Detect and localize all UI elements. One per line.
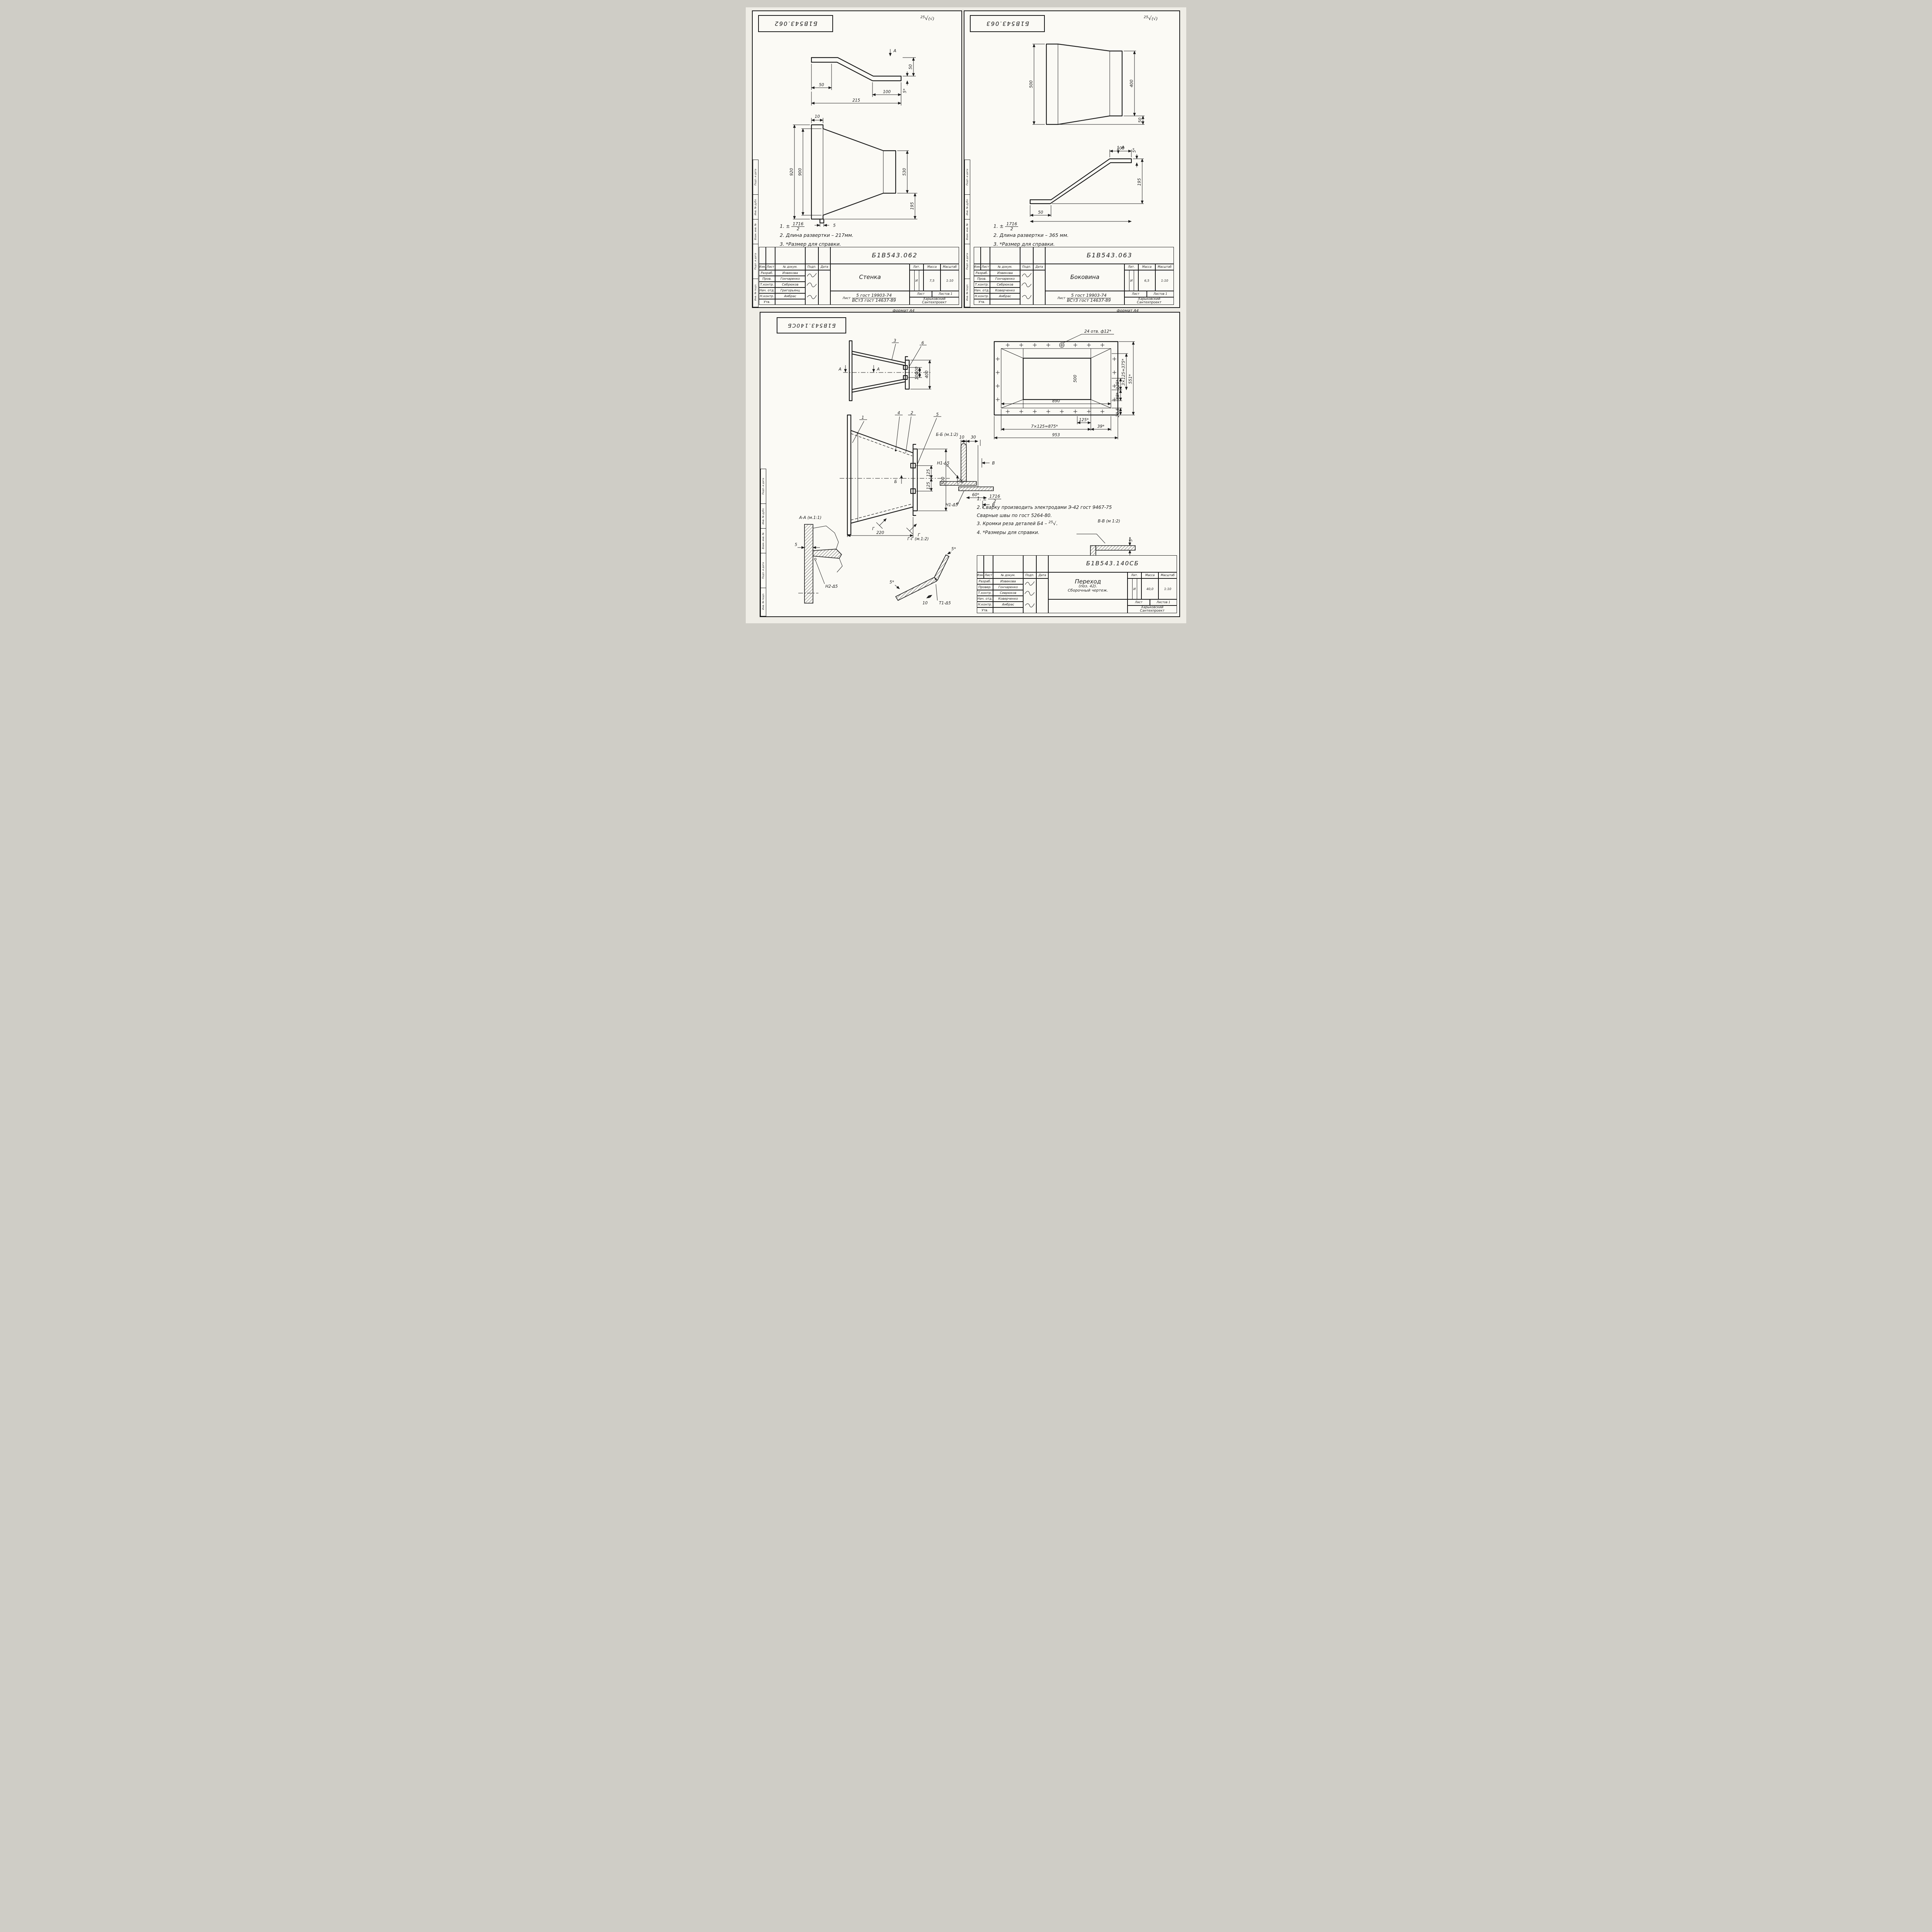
sheet-bokovina: Б1В543.063 25√(√) 500 400 50 bbox=[964, 10, 1180, 308]
organization: ХарьковскийСантехпроект bbox=[910, 297, 959, 305]
svg-text:125: 125 bbox=[926, 469, 931, 477]
svg-text:953: 953 bbox=[1052, 433, 1060, 437]
svg-text:50: 50 bbox=[819, 83, 824, 87]
svg-text:А: А bbox=[1121, 145, 1124, 150]
svg-text:5*: 5* bbox=[903, 88, 907, 93]
organization: ХарьковскийСантехпроект bbox=[1128, 605, 1177, 613]
frame-label-strip: Подп. и дата Инв. № дубл. Взам. инв. № П… bbox=[964, 160, 970, 307]
svg-text:5: 5 bbox=[936, 412, 939, 417]
svg-text:20,5: 20,5 bbox=[1116, 408, 1120, 417]
organization: ХарьковскийСантехпроект bbox=[1124, 297, 1174, 305]
svg-text:А: А bbox=[893, 49, 896, 53]
notes-block: 1. ±17162 2. Длина развертки – 217мм. 3.… bbox=[780, 222, 854, 248]
svg-text:6: 6 bbox=[922, 341, 924, 345]
ramp-profile-view-drawing: 50 100 195 5* А bbox=[1019, 135, 1150, 224]
svg-text:А: А bbox=[876, 367, 879, 372]
svg-text:125: 125 bbox=[926, 482, 931, 490]
frame-label-strip: Подп. и дата Инв. № дубл. Взам. инв. № П… bbox=[753, 160, 759, 307]
side-flat-view-drawing: 500 400 50 bbox=[1022, 32, 1146, 133]
svg-text:3×125=375*: 3×125=375* bbox=[1121, 359, 1126, 386]
sheet-stenka: Б1В543.062 25√(√) 50 100 215 50 bbox=[752, 10, 962, 308]
frame-label-strip: Подп. и дата Инв. № дубл. Взам. инв. № П… bbox=[760, 469, 766, 616]
dimensions: 50 100 195 5* А bbox=[1030, 145, 1144, 221]
svg-text:50: 50 bbox=[908, 64, 913, 70]
svg-text:50: 50 bbox=[1138, 117, 1143, 123]
svg-text:А: А bbox=[838, 367, 841, 372]
titleblock-doc-number: Б1В543.140СБ bbox=[1048, 555, 1177, 572]
notes-block: 1. ±17162 2. Сварку производить электрод… bbox=[977, 494, 1112, 537]
titleblock-doc-number: Б1В543.063 bbox=[1045, 247, 1174, 264]
svg-text:5*: 5* bbox=[1129, 537, 1133, 542]
svg-text:551*: 551* bbox=[1128, 374, 1133, 384]
svg-text:215: 215 bbox=[852, 98, 860, 103]
svg-text:Т1-Δ5: Т1-Δ5 bbox=[939, 601, 951, 605]
flange-plan-view-drawing: 24 отв. ф12* 890 500 125* 88* 3×125=375*… bbox=[986, 328, 1141, 444]
svg-text:500: 500 bbox=[1073, 375, 1078, 383]
part-name: Боковина bbox=[1045, 264, 1124, 291]
svg-text:900: 900 bbox=[798, 168, 803, 176]
annotations: 24 отв. ф12* 890 500 125* 88* 3×125=375*… bbox=[994, 329, 1135, 439]
listov-cell: Листов 1 bbox=[1147, 291, 1174, 297]
svg-text:100: 100 bbox=[883, 90, 891, 94]
note-1: 1. ±17162 bbox=[780, 222, 854, 231]
svg-text:Б: Б bbox=[894, 480, 897, 484]
svg-text:920: 920 bbox=[789, 168, 794, 176]
svg-text:400: 400 bbox=[925, 371, 929, 378]
svg-text:5*: 5* bbox=[889, 580, 894, 585]
doc-number-text: Б1В543.140СБ bbox=[787, 322, 836, 328]
note-4: 4. *Размеры для справки. bbox=[977, 529, 1112, 537]
svg-text:3: 3 bbox=[894, 338, 896, 343]
check-paren-icon: (√) bbox=[928, 16, 934, 21]
svg-text:Н1-Δ5: Н1-Δ5 bbox=[946, 503, 958, 507]
note-2: 2. Длина развертки – 365 мм. bbox=[993, 231, 1069, 240]
note-2: 2. Длина развертки – 217мм. bbox=[780, 231, 854, 240]
svg-text:10: 10 bbox=[959, 435, 964, 440]
svg-text:100: 100 bbox=[915, 372, 919, 380]
svg-text:39*: 39* bbox=[1097, 424, 1105, 429]
signature-scribbles bbox=[1020, 270, 1033, 305]
roughness-mark: 25√(√) bbox=[1144, 14, 1158, 22]
svg-text:24 отв. ф12*: 24 отв. ф12* bbox=[1084, 329, 1111, 334]
check-paren-icon: (√) bbox=[1151, 16, 1158, 21]
note-1: 1. ±17162 bbox=[993, 222, 1069, 231]
material-cell bbox=[1048, 599, 1128, 613]
svg-text:530: 530 bbox=[902, 168, 907, 176]
svg-text:10: 10 bbox=[922, 601, 928, 605]
doc-number-stamp: Б1В543.063 bbox=[970, 15, 1045, 32]
svg-text:5*: 5* bbox=[1132, 148, 1137, 153]
svg-text:2: 2 bbox=[911, 411, 913, 415]
upper-funnel-view-drawing: А А 3 6 100 100 400 bbox=[834, 331, 940, 408]
note-2b: Сварные швы по гост 5264-80. bbox=[977, 512, 1112, 520]
svg-text:50: 50 bbox=[1038, 210, 1043, 215]
section-label: Б-Б (м.1:2) bbox=[936, 432, 958, 437]
svg-text:890: 890 bbox=[1052, 399, 1060, 403]
outline bbox=[811, 58, 901, 81]
note-2a: 2. Сварку производить электродами Э-42 г… bbox=[977, 503, 1112, 512]
material-cell: Лист5 гост 19903-74ВСт3 гост 14637-89 bbox=[1045, 291, 1124, 305]
outline bbox=[798, 524, 842, 603]
listov-cell: Листов 1 bbox=[932, 291, 959, 297]
title-block: Изм. Лист № докум. Подп. Дата Разраб.Изв… bbox=[759, 247, 959, 305]
part-name: Переход (поз. 42). Сборочный чертеж. bbox=[1048, 572, 1128, 599]
notes-block: 1. ±17162 2. Длина развертки – 365 мм. 3… bbox=[993, 222, 1069, 248]
material-cell: Лист5 гост 19903-74ВСт3 гост 14637-89 bbox=[830, 291, 910, 305]
listov-cell: Листов 1 bbox=[1150, 599, 1177, 605]
note-1: 1. ±17162 bbox=[977, 494, 1112, 503]
sheet-perehod-assembly: Б1В543.140СБ А А 3 6 100 bbox=[760, 312, 1180, 617]
svg-text:4: 4 bbox=[898, 411, 900, 415]
outline bbox=[1030, 159, 1131, 204]
svg-text:1: 1 bbox=[862, 415, 864, 420]
section-label: А-А (м.1:1) bbox=[799, 515, 821, 520]
doc-number-text: Б1В543.062 bbox=[774, 20, 817, 27]
svg-text:195: 195 bbox=[1137, 178, 1142, 186]
svg-text:В: В bbox=[992, 461, 995, 466]
flat-pattern-view-drawing: 10 920 900 530 195 5 bbox=[784, 112, 927, 228]
svg-text:400: 400 bbox=[1129, 80, 1134, 87]
svg-text:Н2-Δ5: Н2-Δ5 bbox=[825, 584, 838, 589]
signature-scribbles bbox=[1023, 578, 1036, 613]
roughness-mark: 25√(√) bbox=[920, 14, 934, 22]
doc-number-stamp: Б1В543.062 bbox=[758, 15, 833, 32]
svg-text:220: 220 bbox=[876, 531, 884, 535]
outline bbox=[1046, 44, 1122, 124]
svg-text:500: 500 bbox=[1029, 80, 1034, 88]
outline bbox=[811, 125, 896, 223]
dimensions: 10 920 900 530 195 5 bbox=[789, 114, 917, 228]
svg-text:195: 195 bbox=[910, 202, 915, 210]
svg-text:125*: 125* bbox=[1079, 418, 1088, 422]
outline bbox=[896, 555, 949, 600]
section-label: Г-Г (м.1:2) bbox=[907, 537, 929, 541]
part-name: Стенка bbox=[830, 264, 910, 291]
svg-text:88*: 88* bbox=[1116, 393, 1120, 400]
svg-text:5*: 5* bbox=[951, 547, 956, 551]
outline bbox=[840, 415, 950, 535]
title-block: Изм. Лист № докум. Подп. Дата Разраб.Изв… bbox=[977, 555, 1177, 613]
svg-text:30: 30 bbox=[971, 435, 976, 440]
svg-text:125*: 125* bbox=[1116, 379, 1120, 389]
svg-text:7×125=875*: 7×125=875* bbox=[1031, 424, 1058, 429]
svg-text:Г: Г bbox=[872, 527, 875, 531]
signature-scribbles bbox=[805, 270, 818, 305]
titleblock-doc-number: Б1В543.062 bbox=[830, 247, 959, 264]
title-block: Изм. Лист № докум. Подп. Дата Разраб.Изв… bbox=[974, 247, 1174, 305]
scanned-blueprint-page: Альбом 16 Б1В543.062 25√(√) 50 100 215 bbox=[746, 7, 1186, 623]
svg-text:5: 5 bbox=[795, 543, 798, 547]
section-a-a-drawing: А-А (м.1:1) 5 Н2-Δ5 bbox=[793, 514, 851, 608]
outline bbox=[940, 444, 993, 491]
section-g-g-drawing: Г-Г (м.1:2) 5* 5* 10 Т1-Δ5 bbox=[888, 535, 957, 608]
note-3: 3. Кромки реза деталей Б4 –25√. bbox=[977, 520, 1112, 529]
check-icon: √. bbox=[1053, 521, 1058, 527]
svg-text:10: 10 bbox=[815, 114, 820, 119]
doc-number-text: Б1В543.063 bbox=[986, 20, 1029, 27]
bent-strip-view-drawing: 50 100 215 50 5* А bbox=[799, 38, 927, 112]
